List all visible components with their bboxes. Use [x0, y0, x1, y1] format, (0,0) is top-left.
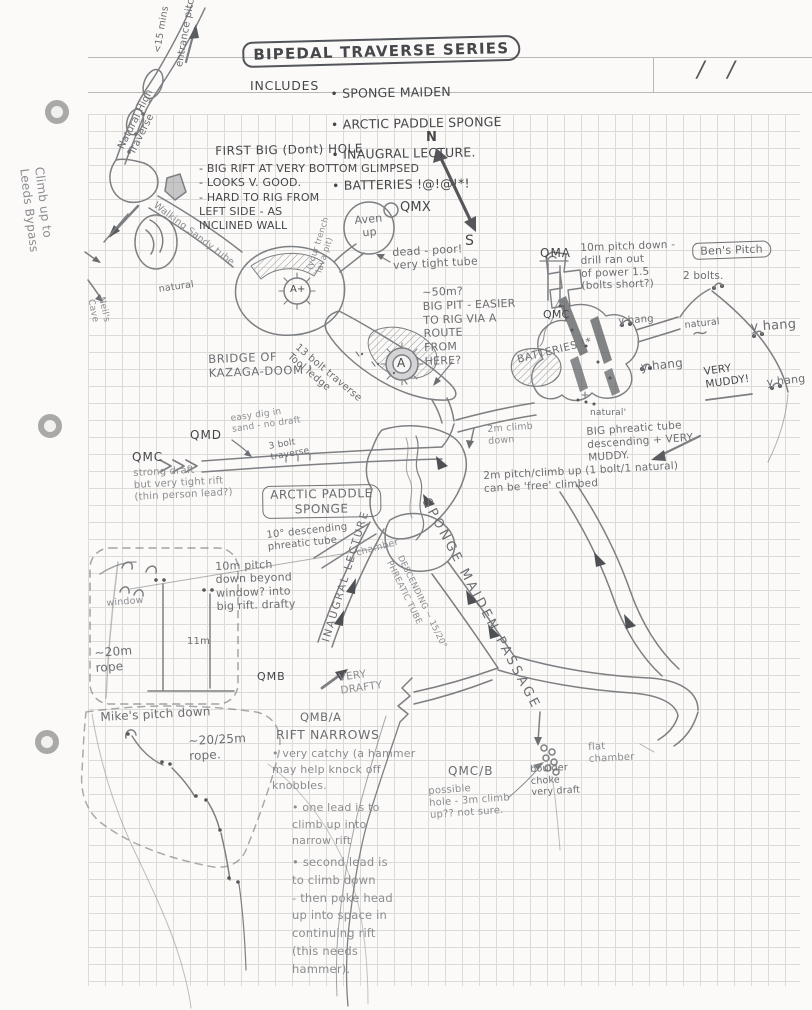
label-qmc-left: QMC: [132, 450, 163, 465]
label-a-circle: A: [397, 356, 405, 371]
label-first-big-hole-notes: - BIG RIFT AT VERY BOTTOM GLIMPSED - LOO…: [199, 162, 419, 233]
label-first-big-hole-title: FIRST BIG (Dont) HOLE: [215, 141, 363, 158]
label-qma-note: 10m pitch down - drill ran out of power …: [580, 239, 677, 293]
label-qma: QMA: [540, 246, 571, 261]
mikes-pitch-complex: [82, 706, 280, 970]
label-aven-up: Aven up: [354, 212, 384, 241]
label-qmc-b-note: possible hole - 3m climb up?? not sure.: [428, 780, 511, 822]
label-bens-pitch: Ben's Pitch: [692, 240, 771, 260]
label-qmc-right: QMC: [543, 308, 569, 321]
label-rift-note-2: • one lead is to climb up into narrow ri…: [292, 800, 380, 850]
label-a-plus: A+: [290, 284, 306, 296]
label-qmb-a: QMB/A: [300, 710, 342, 724]
includes-item: • SPONGE MAIDEN: [330, 83, 501, 101]
includes-item: • ARCTIC PADDLE SPONGE: [331, 114, 502, 132]
label-10m-pitch-window: 10m pitch down beyond window? into big r…: [215, 557, 296, 613]
label-rift-note-3: • second lead is to climb down - then po…: [292, 854, 393, 979]
label-y-hang-2: y hang: [750, 317, 797, 336]
label-qmc-b: QMC/B: [448, 764, 493, 779]
label-compass-north: N: [426, 130, 437, 146]
label-natural-right-2: natural': [590, 408, 626, 419]
label-big-phreatic-tube: BIG phreatic tube descending + VERY MUDD…: [586, 419, 695, 465]
label-20m-rope: ~20m rope: [94, 643, 134, 675]
label-y-hang-1: y hang: [618, 314, 654, 329]
scanned-survey-page: / /: [0, 0, 812, 1010]
label-strong-draft: strong draft but very tight rift (thin p…: [133, 463, 233, 505]
label-big-pit-note: ~50m? BIG PIT - EASIER TO RIG VIA A ROUT…: [422, 283, 518, 369]
label-flat-chamber: flat chamber: [588, 740, 635, 767]
label-qmx: QMX: [400, 200, 431, 216]
label-qmb: QMB: [257, 670, 286, 683]
label-two-bolts: 2 bolts.: [683, 270, 724, 283]
label-rift-narrows: RIFT NARROWS: [276, 727, 380, 742]
label-boulder-choke: boulder choke very draft: [530, 761, 580, 798]
label-11m: 11m: [187, 636, 210, 648]
label-dead-poor-tube: dead - poor! very tight tube: [392, 242, 478, 273]
includes-label: INCLUDES: [250, 78, 319, 93]
label-2m-climb-down: 2m climb down: [487, 421, 534, 447]
label-mikes-rope: ~20/25m rope.: [188, 731, 247, 763]
label-rift-note-1: • very catchy (a hammer may help knock o…: [272, 746, 415, 794]
label-qmd: QMD: [190, 428, 222, 443]
